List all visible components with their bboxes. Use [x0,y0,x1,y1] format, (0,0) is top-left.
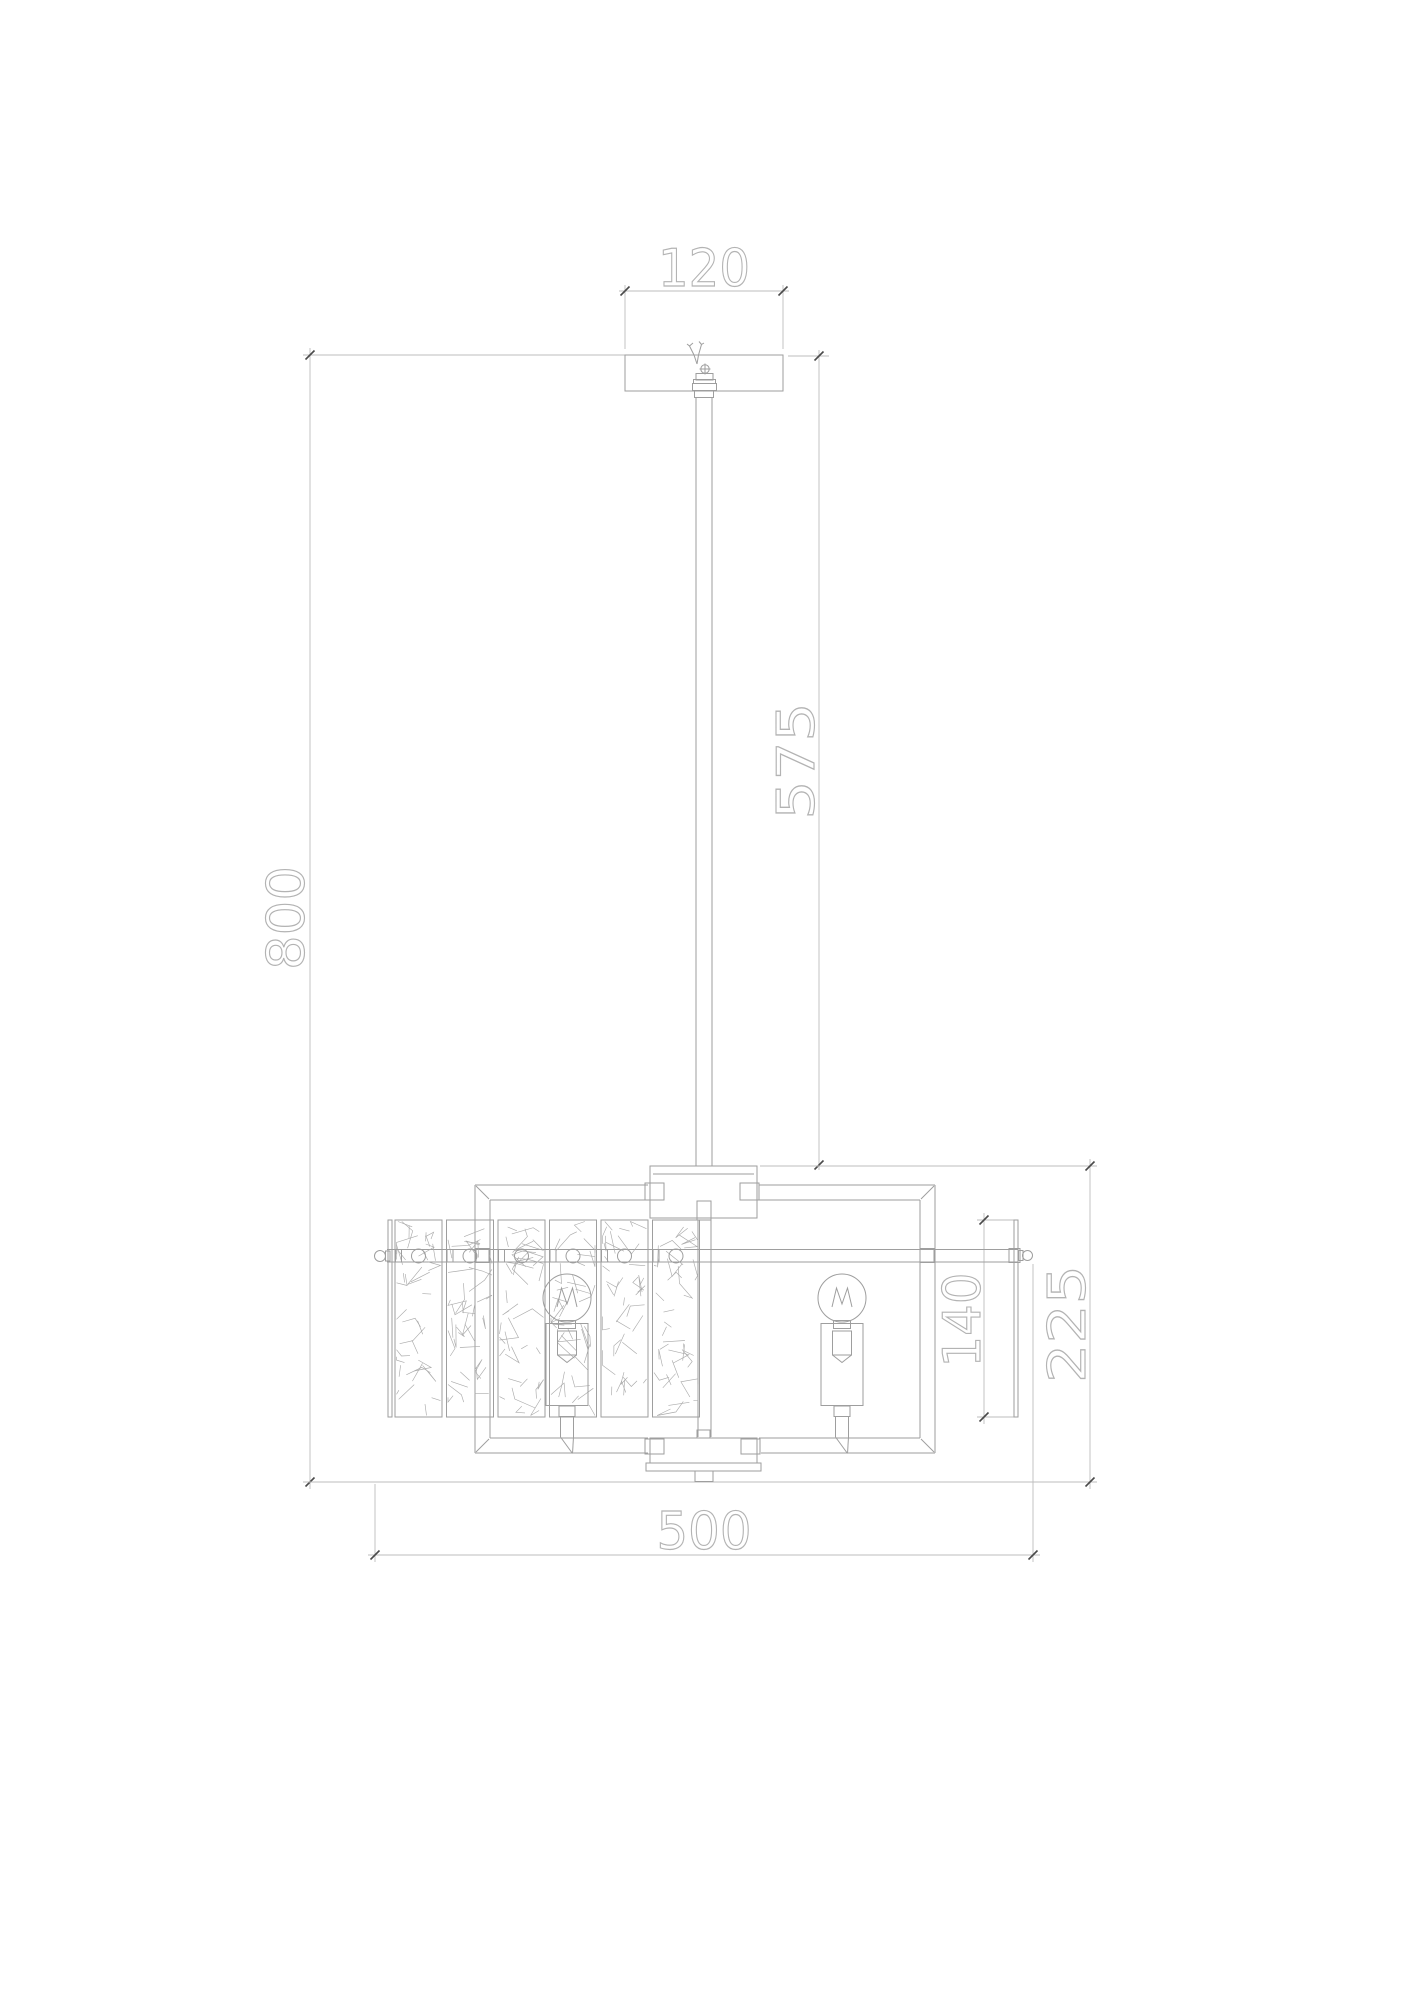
bottom-hub [645,1430,761,1482]
finial-ball-right [1023,1251,1033,1261]
dim-label-575: 575 [767,703,827,820]
dim-canopy-width: 120 [619,239,789,349]
dim-stem-length: 575 [767,350,829,1170]
threaded-nipple [697,1201,711,1220]
dim-label-500: 500 [657,1502,752,1562]
bulb-left [543,1274,591,1454]
dim-overall-height: 800 [257,348,625,1489]
top-hub [645,1166,759,1220]
hub-coupler-left [645,1183,664,1200]
dim-panel-height: 140 [933,1213,1015,1424]
dim-label-800: 800 [257,866,317,970]
panel-hole [566,1249,580,1263]
bottom-finial [695,1471,713,1482]
dim-label-120: 120 [658,239,750,299]
drawing-sheet: 120 800 575 225 500 140 [0,0,1414,2000]
dim-label-140: 140 [933,1273,993,1368]
dim-label-225: 225 [1038,1265,1098,1383]
hanging-hook-detail [687,342,717,398]
chandelier-dimension-drawing: 120 800 575 225 500 140 [0,0,1414,2000]
suspension-rod [696,397,712,1166]
ceiling-canopy [625,342,783,398]
bottom-coupler-left [645,1439,664,1454]
bulb-right [818,1274,866,1454]
panel-hole [618,1249,632,1263]
finial-ball-left [375,1251,386,1262]
panel-hole [669,1249,683,1263]
frame [475,1185,935,1453]
hub-coupler-right [740,1183,759,1200]
